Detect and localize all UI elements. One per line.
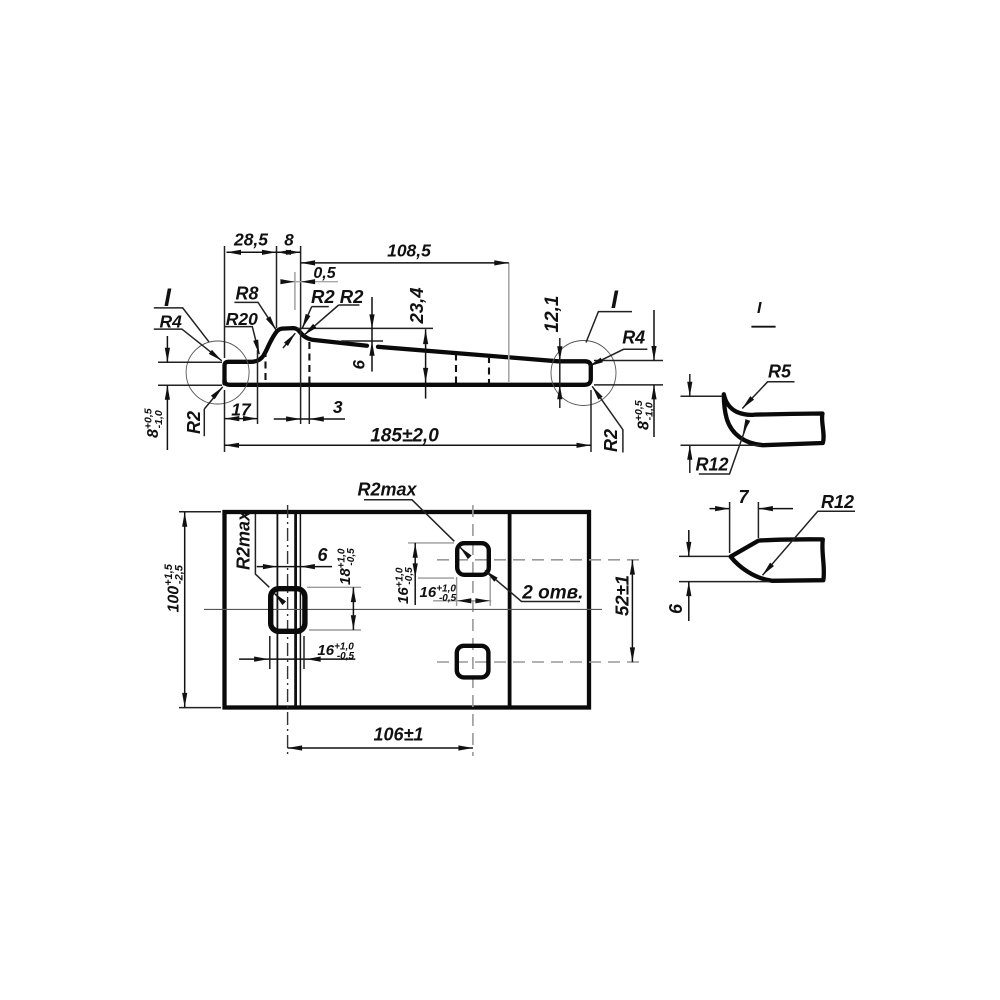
svg-text:6: 6 — [350, 360, 369, 370]
svg-text:28,5: 28,5 — [233, 230, 268, 250]
svg-text:3: 3 — [333, 397, 343, 417]
svg-text:R4: R4 — [622, 328, 645, 348]
svg-text:R12: R12 — [821, 492, 854, 512]
svg-text:R2: R2 — [601, 429, 621, 452]
svg-text:R2max: R2max — [234, 510, 254, 570]
svg-text:8+0,5-1,0: 8+0,5-1,0 — [143, 408, 166, 438]
svg-text:52±1: 52±1 — [612, 575, 633, 616]
svg-text:16+1,0-0,5: 16+1,0-0,5 — [395, 567, 416, 604]
svg-text:16+1,0-0,5: 16+1,0-0,5 — [420, 584, 457, 605]
svg-text:R12: R12 — [696, 455, 729, 475]
svg-text:185±2,0: 185±2,0 — [370, 426, 439, 447]
svg-text:I: I — [611, 286, 619, 314]
svg-text:8+0,5-1,0: 8+0,5-1,0 — [633, 400, 656, 430]
svg-text:108,5: 108,5 — [387, 241, 431, 261]
svg-text:12,1: 12,1 — [542, 296, 563, 333]
svg-text:100+1,5-2,5: 100+1,5-2,5 — [163, 563, 186, 612]
svg-text:R5: R5 — [768, 362, 792, 382]
svg-text:R2max: R2max — [358, 480, 418, 500]
svg-text:R8: R8 — [236, 284, 259, 304]
svg-text:I: I — [757, 300, 762, 317]
svg-text:R2 R2: R2 R2 — [311, 286, 364, 307]
svg-text:6: 6 — [317, 545, 328, 565]
svg-text:8: 8 — [284, 231, 294, 250]
svg-text:2 отв.: 2 отв. — [521, 583, 583, 604]
svg-text:0,5: 0,5 — [313, 265, 336, 282]
svg-text:17: 17 — [231, 400, 252, 420]
svg-text:18+1,0-0,5: 18+1,0-0,5 — [337, 548, 358, 585]
svg-text:16+1,0-0,5: 16+1,0-0,5 — [317, 642, 354, 663]
svg-text:23,4: 23,4 — [406, 287, 427, 324]
svg-text:6: 6 — [666, 603, 686, 614]
svg-text:R2: R2 — [184, 411, 204, 434]
svg-text:106±1: 106±1 — [374, 725, 424, 745]
svg-text:7: 7 — [738, 487, 749, 507]
